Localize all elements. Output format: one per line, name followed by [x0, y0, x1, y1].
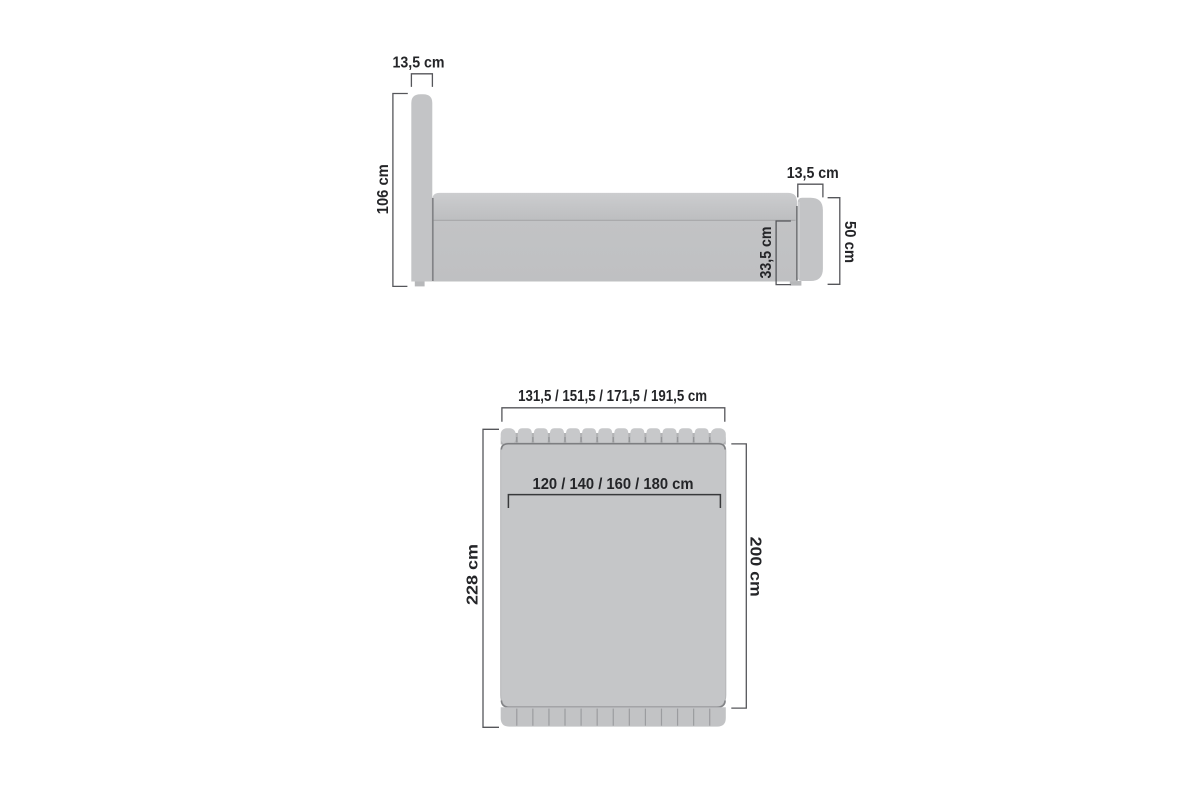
svg-text:120 / 140 / 160 / 180 cm: 120 / 140 / 160 / 180 cm	[533, 476, 694, 493]
svg-text:13,5 cm: 13,5 cm	[393, 54, 445, 71]
svg-text:33,5 cm: 33,5 cm	[758, 227, 775, 279]
svg-text:13,5 cm: 13,5 cm	[787, 165, 839, 182]
svg-text:228 cm: 228 cm	[464, 544, 481, 605]
svg-text:131,5 / 151,5 / 171,5 / 191,5: 131,5 / 151,5 / 171,5 / 191,5 cm	[518, 388, 707, 405]
svg-text:200 cm: 200 cm	[746, 537, 763, 597]
svg-text:106 cm: 106 cm	[375, 164, 392, 214]
svg-text:50 cm: 50 cm	[841, 221, 858, 263]
